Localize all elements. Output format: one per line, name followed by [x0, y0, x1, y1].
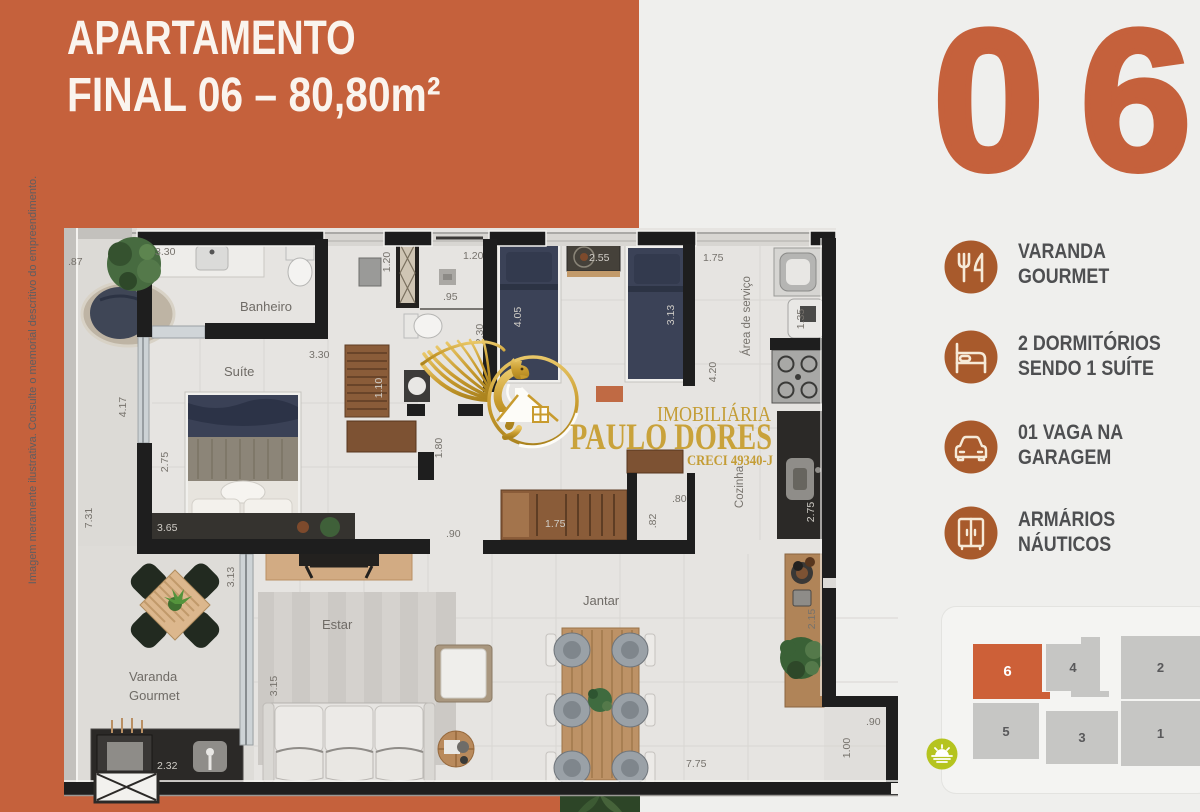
svg-text:.87: .87 [68, 256, 83, 268]
svg-text:4.17: 4.17 [117, 397, 129, 418]
svg-text:Cozinha: Cozinha [734, 465, 746, 508]
svg-text:3.13: 3.13 [665, 305, 677, 326]
svg-text:Jantar: Jantar [583, 593, 620, 608]
svg-text:3.13: 3.13 [225, 567, 237, 588]
svg-text:1.10: 1.10 [373, 378, 385, 399]
svg-text:2.75: 2.75 [159, 452, 171, 473]
svg-text:7.75: 7.75 [686, 758, 707, 770]
svg-text:PAULO DORES: PAULO DORES [570, 417, 772, 458]
svg-text:3.30: 3.30 [309, 349, 330, 361]
svg-text:7.31: 7.31 [83, 508, 95, 529]
svg-text:4.05: 4.05 [512, 307, 524, 328]
svg-text:Estar: Estar [322, 617, 353, 632]
svg-text:1.80: 1.80 [433, 438, 445, 459]
svg-text:.90: .90 [866, 716, 881, 728]
svg-text:.95: .95 [443, 291, 458, 303]
svg-text:CRECI 49340-J: CRECI 49340-J [687, 453, 773, 469]
svg-text:Gourmet: Gourmet [129, 688, 180, 703]
svg-text:1.00: 1.00 [841, 738, 853, 759]
svg-text:3.15: 3.15 [268, 676, 280, 697]
svg-text:2.15: 2.15 [806, 609, 818, 630]
svg-text:Banheiro: Banheiro [240, 299, 292, 314]
svg-text:3.65: 3.65 [157, 522, 178, 534]
svg-text:.82: .82 [647, 514, 659, 529]
svg-text:2.32: 2.32 [157, 760, 178, 772]
svg-text:1.75: 1.75 [703, 252, 724, 264]
svg-text:Varanda: Varanda [129, 669, 178, 684]
svg-text:4.20: 4.20 [707, 362, 719, 383]
svg-text:1.20: 1.20 [381, 252, 393, 273]
svg-text:1.75: 1.75 [545, 518, 566, 530]
svg-text:Área de serviço: Área de serviço [740, 276, 753, 356]
svg-text:2.75: 2.75 [805, 502, 817, 523]
svg-text:1.35: 1.35 [795, 309, 807, 330]
svg-text:2.55: 2.55 [589, 252, 610, 264]
svg-text:Suíte: Suíte [224, 364, 254, 379]
svg-text:.90: .90 [446, 528, 461, 540]
svg-text:3.30: 3.30 [155, 246, 176, 258]
svg-text:1.20: 1.20 [463, 250, 484, 262]
svg-text:.80: .80 [672, 493, 687, 505]
